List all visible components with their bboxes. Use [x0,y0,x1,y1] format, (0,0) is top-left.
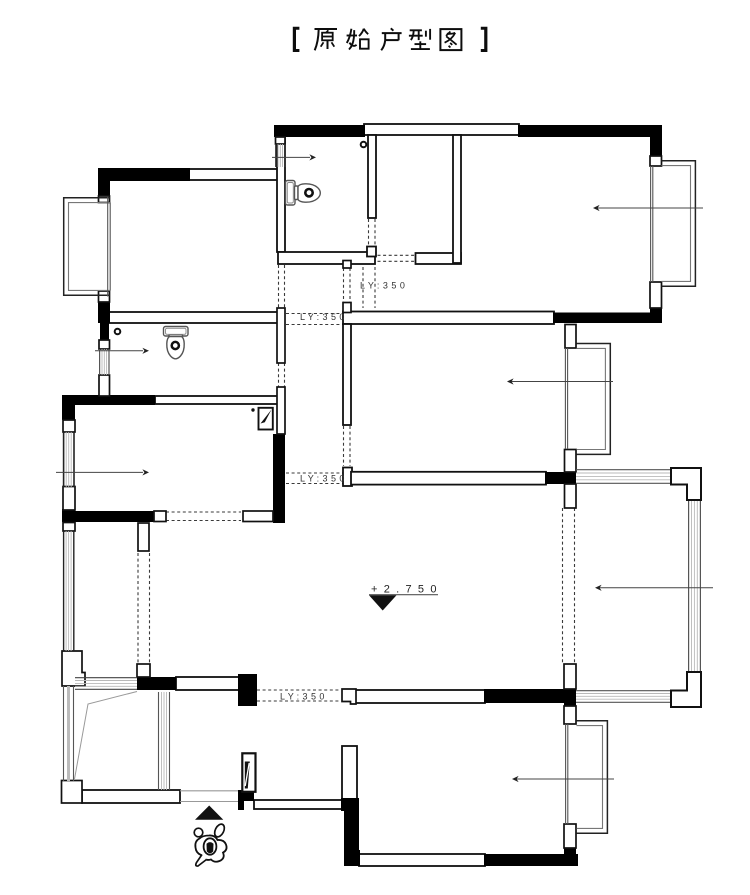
svg-text:LY:350: LY:350 [360,281,408,291]
svg-text:LY:350: LY:350 [300,474,348,484]
svg-text:+2.750: +2.750 [371,584,443,596]
svg-text:LY:350: LY:350 [300,312,348,322]
svg-text:LY:350: LY:350 [280,692,328,702]
